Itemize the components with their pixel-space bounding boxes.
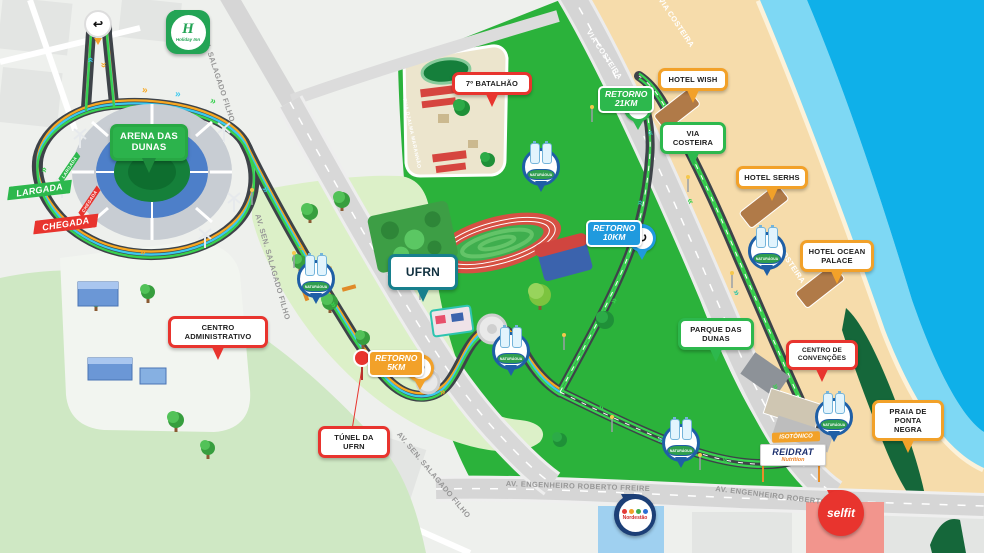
- holiday-inn-pin[interactable]: H Holiday Inn: [166, 10, 210, 54]
- badge-label: PRAIA DE PONTA NEGRA: [889, 407, 926, 434]
- badge-label: TÚNEL DA UFRN: [334, 433, 373, 451]
- uturn-icon: ↩: [93, 17, 103, 31]
- nordestao-pin[interactable]: Nordestão: [614, 494, 656, 536]
- badge-pointer: [485, 92, 499, 107]
- water-station-marker[interactable]: NATURÁGUA: [815, 398, 853, 450]
- water-bottle-icon: [530, 143, 540, 164]
- water-station-marker[interactable]: NATURÁGUA: [522, 148, 560, 200]
- pin-tail: [535, 181, 547, 192]
- badge-label: ARENA DAS DUNAS: [120, 131, 178, 153]
- race-route-map: » » » » » » » » » » » » » » » » » » » » …: [0, 0, 984, 553]
- retorno-10km-badge[interactable]: RETORNO 10KM: [586, 220, 642, 247]
- selfit-pin[interactable]: selfit: [818, 490, 864, 536]
- badge-label: 7º BATALHÃO: [466, 79, 518, 88]
- water-bottle-icon: [305, 255, 315, 276]
- holiday-inn-initial: H: [182, 22, 194, 37]
- pin-tail: [94, 38, 102, 45]
- nordestao-dots: [622, 509, 648, 514]
- water-station-marker[interactable]: NATURÁGUA: [748, 232, 786, 284]
- badge-pointer: [211, 345, 225, 360]
- water-bottle-icon: [512, 327, 522, 348]
- badge-7-batalhao[interactable]: 7º BATALHÃO: [452, 72, 532, 95]
- badge-hotel-wish[interactable]: HOTEL WISH: [658, 68, 728, 91]
- retorno-km: 5KM: [387, 362, 405, 372]
- holiday-inn-logo: H Holiday Inn: [171, 15, 206, 50]
- water-bottle-icon: [542, 143, 552, 164]
- water-station-marker[interactable]: NATURÁGUA: [662, 424, 700, 476]
- pin-tail: [675, 457, 687, 468]
- badge-parque-das-dunas[interactable]: PARQUE DAS DUNAS: [678, 318, 754, 350]
- pin-tail: [310, 293, 322, 304]
- badge-praia-de-ponta-negra[interactable]: PRAIA DE PONTA NEGRA: [872, 400, 944, 441]
- water-bottle-icon: [768, 227, 778, 248]
- selfit-logo: selfit: [827, 506, 855, 520]
- badge-pointer: [416, 287, 430, 302]
- route-chevron-icon: »: [86, 57, 96, 63]
- badge-via-costeira[interactable]: VIA COSTEIRA: [660, 122, 726, 154]
- badge-tunel-da-ufrn[interactable]: TÚNEL DA UFRN: [318, 426, 390, 458]
- route-chevron-icon: »: [141, 86, 148, 97]
- water-bottle-icon: [317, 255, 327, 276]
- route-chevron-icon: »: [98, 62, 108, 68]
- naturagua-label: NATURÁGUA: [753, 253, 781, 264]
- pin-tail: [637, 251, 647, 260]
- naturagua-label: NATURÁGUA: [667, 445, 695, 456]
- badge-label: HOTEL OCEAN PALACE: [809, 247, 866, 265]
- badge-label: HOTEL SERHS: [744, 173, 799, 182]
- pin-tail: [633, 121, 643, 130]
- water-bottle-icon: [823, 393, 833, 414]
- badge-pointer: [765, 186, 779, 201]
- badge-pointer: [709, 347, 723, 362]
- badge-label: HOTEL WISH: [669, 75, 718, 84]
- reidrat-sub: Nutrition: [764, 457, 822, 463]
- naturagua-label: NATURÁGUA: [497, 353, 525, 364]
- pin-tail: [415, 381, 425, 390]
- holiday-inn-script: Holiday Inn: [176, 37, 200, 42]
- badge-label: CENTRO ADMINISTRATIVO: [185, 323, 252, 341]
- route-chevron-icon: »: [175, 90, 181, 100]
- naturagua-label: NATURÁGUA: [302, 281, 330, 292]
- campus-building: [430, 305, 473, 336]
- roundabout-uturn-marker[interactable]: ↩: [84, 10, 112, 38]
- water-bottle-icon: [670, 419, 680, 440]
- retorno-km: 10KM: [603, 232, 626, 242]
- nordestao-logo: Nordestão: [619, 499, 652, 532]
- badge-ufrn[interactable]: UFRN: [388, 254, 458, 290]
- badge-arena-das-dunas[interactable]: ARENA DAS DUNAS: [110, 124, 188, 161]
- badge-hotel-serhs[interactable]: HOTEL SERHS: [736, 166, 808, 189]
- water-bottle-icon: [500, 327, 510, 348]
- isotonico-banner: ISOTÔNICO: [772, 431, 820, 443]
- water-bottle-icon: [756, 227, 766, 248]
- badge-centro-de-convencoes[interactable]: CENTRO DE CONVENÇÕES: [786, 340, 858, 370]
- water-station-marker[interactable]: NATURÁGUA: [297, 260, 335, 312]
- badge-label: UFRN: [406, 265, 440, 279]
- pin-tail: [828, 431, 840, 442]
- reidrat-logo: REIDRAT: [764, 447, 822, 457]
- badge-label: CENTRO DE CONVENÇÕES: [798, 347, 846, 362]
- retorno-21km-badge[interactable]: RETORNO 21KM: [598, 86, 654, 113]
- nordestao-name: Nordestão: [623, 515, 648, 521]
- badge-hotel-ocean-palace[interactable]: HOTEL OCEAN PALACE: [800, 240, 874, 272]
- water-bottle-icon: [835, 393, 845, 414]
- retorno-km: 21KM: [615, 98, 638, 108]
- banner-post: [762, 466, 764, 482]
- badge-label: PARQUE DAS DUNAS: [690, 325, 741, 343]
- banner-post: [818, 466, 820, 482]
- retorno-5km-badge[interactable]: RETORNO 5KM: [368, 350, 424, 377]
- water-station-marker[interactable]: NATURÁGUA: [492, 332, 530, 384]
- naturagua-label: NATURÁGUA: [820, 419, 848, 430]
- badge-centro-administrativo[interactable]: CENTRO ADMINISTRATIVO: [168, 316, 268, 348]
- pin-tail: [505, 365, 517, 376]
- badge-pointer: [830, 269, 844, 284]
- badge-pointer: [686, 151, 700, 166]
- water-bottle-icon: [682, 419, 692, 440]
- pin-tail: [761, 265, 773, 276]
- badge-pointer: [815, 367, 829, 382]
- badge-label: VIA COSTEIRA: [673, 129, 713, 147]
- route-chevron-icon: »: [140, 248, 146, 258]
- badge-pointer: [142, 158, 156, 173]
- route-chevron-icon: »: [721, 456, 728, 467]
- reidrat-banner[interactable]: REIDRAT Nutrition: [760, 444, 826, 466]
- badge-pointer: [686, 88, 700, 103]
- naturagua-label: NATURÁGUA: [527, 169, 555, 180]
- badge-pointer: [901, 438, 915, 453]
